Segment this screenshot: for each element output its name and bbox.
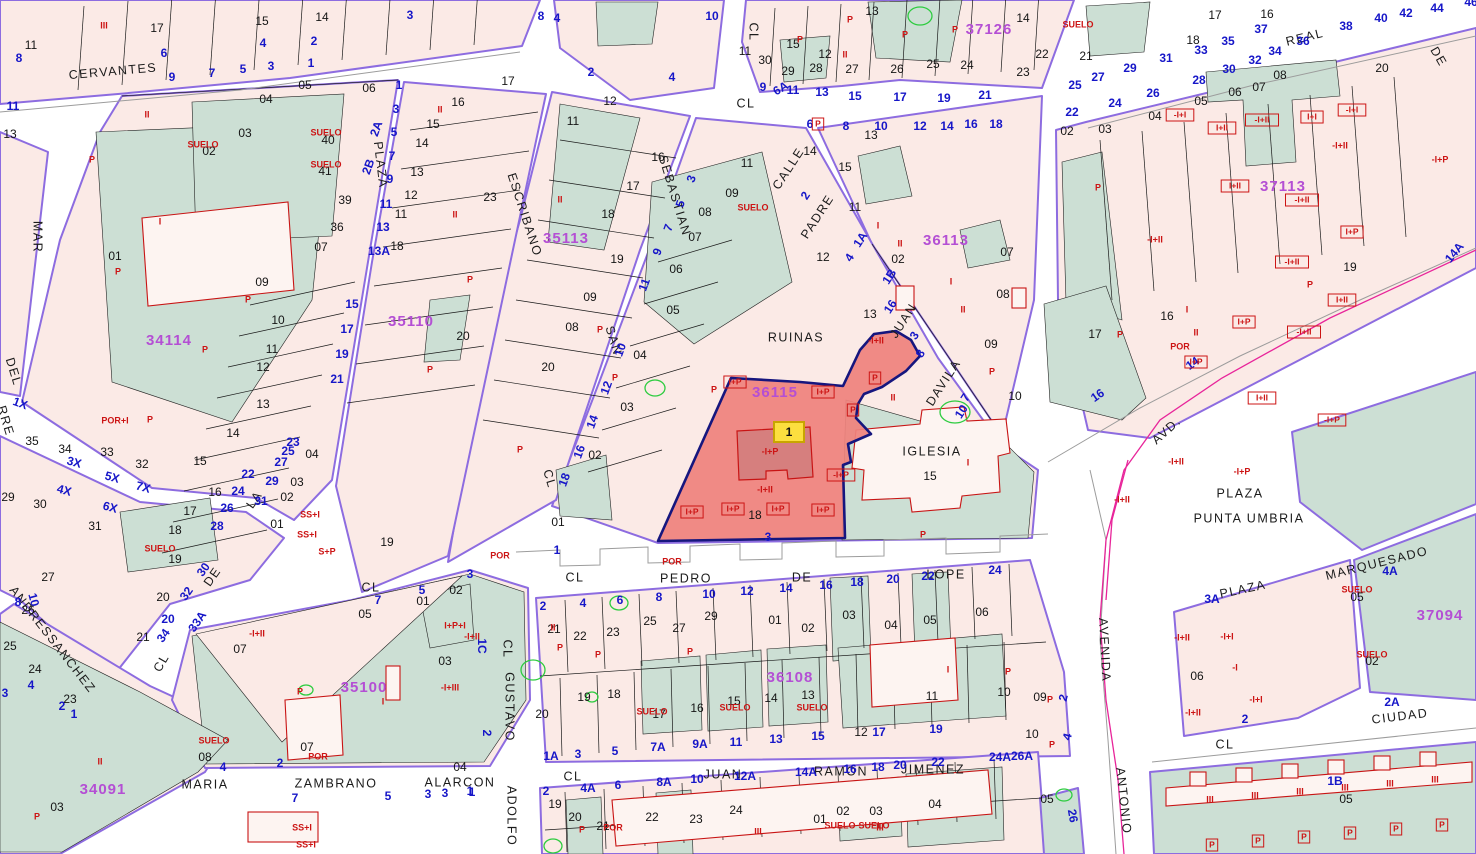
building-annotation: P: [989, 366, 995, 376]
boxed-annotation: I+II: [1336, 294, 1348, 304]
parcel-number: 21: [136, 630, 150, 644]
parcel-number: 17: [626, 179, 640, 193]
street-label: RRE: [0, 404, 17, 438]
parcel-number: 30: [758, 53, 772, 67]
building-annotation: SS+I: [300, 509, 320, 519]
house-number: 8A: [656, 775, 672, 789]
building-annotation: P: [467, 274, 473, 284]
city-block[interactable]: [1174, 560, 1360, 736]
parcel-number: 16: [451, 95, 465, 109]
house-number: 3: [407, 8, 414, 22]
parcel-number: 23: [606, 625, 620, 639]
house-number: 26: [1146, 86, 1160, 100]
house-number: 15: [811, 729, 825, 743]
parcel-number: 02: [588, 448, 602, 462]
parcel-number: 07: [233, 642, 247, 656]
street-label: ALARCON: [425, 775, 496, 789]
parcel-number: 04: [305, 447, 319, 461]
parcel-number: 14: [415, 136, 429, 150]
street-label: DE: [792, 570, 812, 584]
boxed-annotation: I+II: [1216, 122, 1228, 132]
building-annotation: SS+I: [296, 839, 316, 849]
house-number: 37: [1254, 22, 1268, 36]
house-number: 4: [220, 760, 227, 774]
house-number: 20: [161, 612, 175, 626]
building-footprint: [1012, 288, 1026, 308]
house-number: 17: [893, 90, 907, 104]
parcel-number: 09: [1033, 690, 1047, 704]
building-annotation: POR: [308, 751, 328, 761]
parcel-number: 20: [1375, 61, 1389, 75]
green-parcel[interactable]: [1086, 2, 1150, 56]
house-number: 29: [1123, 61, 1137, 75]
building-annotation: II: [842, 49, 847, 59]
house-number: 35: [1221, 34, 1235, 48]
building-annotation: SUELO: [636, 706, 667, 716]
house-number: 36: [1296, 34, 1310, 48]
parcel-number: 05: [1040, 792, 1054, 806]
parcel-number: 06: [1228, 85, 1242, 99]
parcel-number: 25: [3, 639, 17, 653]
parcel-number: 12: [404, 188, 418, 202]
building-annotation: -I+II: [1185, 707, 1201, 717]
parcel-number: 25: [926, 57, 940, 71]
house-number: 2: [311, 34, 318, 48]
parcel-number: 04: [1148, 109, 1162, 123]
building-annotation: III: [1431, 774, 1439, 784]
parcel-number: 03: [869, 804, 883, 818]
house-number: 2: [480, 730, 494, 737]
parcel-number: 15: [426, 117, 440, 131]
boxed-annotation: I+II: [1256, 392, 1268, 402]
boxed-annotation: P: [815, 118, 821, 128]
parcel-number: 01: [108, 249, 122, 263]
street-label: CIUDAD: [1371, 706, 1429, 727]
building-annotation: P: [89, 154, 95, 164]
building-annotation: -I+I: [1249, 694, 1262, 704]
building-annotation: II: [452, 209, 457, 219]
house-number: 7A: [650, 740, 666, 754]
boxed-annotation: -I+II: [1297, 326, 1312, 336]
building-annotation: P: [847, 14, 853, 24]
parcel-number: 05: [358, 607, 372, 621]
green-parcel[interactable]: [868, 0, 962, 62]
parcel-number: 15: [193, 454, 207, 468]
parcel-number: 02: [836, 804, 850, 818]
building-annotation: -I: [1232, 662, 1238, 672]
house-number: 10: [705, 9, 719, 23]
house-number: 26: [220, 501, 234, 515]
parcel-number: 15: [838, 160, 852, 174]
parcel-number: 02: [801, 621, 815, 635]
parcel-number: 17: [183, 504, 197, 518]
parcel-number: 05: [298, 78, 312, 92]
building-annotation: SS+I: [297, 529, 317, 539]
parcel-number: 01: [416, 594, 430, 608]
house-number: 22: [241, 467, 255, 481]
parcel-number: 10: [271, 313, 285, 327]
building-annotation: -I+II: [249, 628, 265, 638]
house-number: 8: [656, 590, 663, 604]
house-number: 3A: [1204, 592, 1220, 606]
green-parcel[interactable]: [596, 2, 658, 46]
cadastral-map-canvas[interactable]: CERVANTESMARDELRREPLAZAESCRIBANOSEBASTIA…: [0, 0, 1476, 854]
parcel-number: 09: [255, 275, 269, 289]
building-annotation: P: [115, 266, 121, 276]
house-number: 2: [543, 784, 550, 798]
building-annotation: SUELO: [796, 702, 827, 712]
building-footprint: [870, 638, 958, 707]
parcel-number: 02: [449, 583, 463, 597]
building-annotation: -I+P: [1234, 466, 1251, 476]
house-number: 3: [442, 786, 449, 800]
house-number: 17: [340, 322, 354, 336]
building-annotation: POR: [490, 550, 510, 560]
house-number: 24A: [989, 750, 1011, 764]
parcel-number: 05: [923, 613, 937, 627]
parcel-number: 11: [266, 342, 279, 356]
house-number: 4: [669, 70, 676, 84]
house-number: 26: [1065, 808, 1081, 824]
house-number: 5X: [103, 469, 121, 486]
selected-parcel-badge: 1: [773, 421, 805, 443]
boxed-annotation: P: [850, 404, 856, 414]
house-number: 14A: [795, 765, 817, 779]
parcel-number: 22: [573, 629, 587, 643]
parcel-number: 20: [535, 707, 549, 721]
block-code: 35113: [543, 230, 589, 247]
parcel-number: 11: [567, 114, 580, 128]
house-number: 1A: [543, 749, 559, 763]
building-annotation: POR: [1170, 341, 1190, 351]
building-annotation: -I+I: [1220, 631, 1233, 641]
building-annotation: P: [595, 649, 601, 659]
boundary-line: [1106, 460, 1128, 600]
house-number: 11: [730, 735, 743, 749]
building-annotation: P: [920, 529, 926, 539]
parcel-number: 29: [781, 64, 795, 78]
house-number: 9A: [692, 737, 708, 751]
block-code: 36108: [767, 669, 814, 686]
house-number: 27: [274, 455, 288, 469]
house-number: 4: [28, 678, 35, 692]
parcel-number: 19: [548, 797, 562, 811]
parcel-number: 29: [704, 609, 718, 623]
building-annotation: SUELO: [1062, 19, 1093, 29]
parcel-number: 13: [863, 307, 877, 321]
parcel-number: 14: [1016, 11, 1030, 25]
building-footprint: [1282, 764, 1298, 778]
block-code: 36113: [923, 232, 969, 249]
house-number: 2A: [1384, 695, 1400, 709]
parcel-number: 13: [865, 4, 879, 18]
parcel-number: 33: [100, 445, 114, 459]
street-label: RUINAS: [768, 330, 824, 344]
house-number: 25: [1068, 78, 1082, 92]
building-annotation: POR: [603, 822, 623, 832]
parcel-number: 16: [208, 485, 222, 499]
building-annotation: II: [97, 756, 102, 766]
boxed-annotation: -I+I: [1174, 109, 1187, 119]
house-number: 19: [937, 91, 951, 105]
house-number: 6: [617, 593, 624, 607]
house-number: 34: [154, 626, 173, 645]
building-annotation: III: [754, 826, 762, 836]
building-annotation: P: [711, 384, 717, 394]
building-annotation: I: [382, 696, 385, 706]
building-annotation: P: [245, 294, 251, 304]
street-label: PLAZA: [1216, 486, 1263, 500]
building-annotation: P: [1117, 329, 1123, 339]
parcel-number: 08: [698, 205, 712, 219]
building-annotation: I+P+I: [444, 620, 466, 630]
house-number: 1: [71, 707, 78, 721]
boxed-annotation: I+P: [1190, 356, 1203, 366]
building-annotation: I: [877, 220, 880, 230]
house-number: 28: [210, 519, 224, 533]
parcel-number: 04: [928, 797, 942, 811]
house-number: 8: [843, 119, 850, 133]
building-annotation: II: [550, 622, 555, 632]
house-number: 11: [7, 99, 20, 113]
house-number: 1: [554, 543, 561, 557]
house-number: 14: [940, 119, 954, 133]
boxed-annotation: I+II: [1229, 180, 1241, 190]
parcel-number: 23: [1016, 65, 1030, 79]
building-annotation: SUELO: [858, 820, 889, 830]
boxed-annotation: I+I: [1307, 111, 1317, 121]
parcel-number: 08: [565, 320, 579, 334]
parcel-number: 20: [541, 360, 555, 374]
boxed-annotation: -I+P: [1324, 414, 1340, 424]
building-annotation: SS+I: [292, 822, 312, 832]
house-number: 13A: [368, 244, 390, 258]
house-number: 29: [265, 474, 279, 488]
boxed-annotation: P: [1255, 835, 1261, 845]
building-footprint: [1374, 756, 1390, 770]
house-number: 7X: [134, 479, 152, 496]
parcel-number: 30: [33, 497, 47, 511]
building-annotation: SUELO: [1341, 584, 1372, 594]
building-footprint: [1420, 752, 1436, 766]
block-code: 35110: [388, 313, 434, 330]
parcel-number: 01: [270, 517, 284, 531]
parcel-number: 25: [643, 614, 657, 628]
boxed-annotation: I+P: [817, 386, 830, 396]
parcel-number: 07: [314, 240, 328, 254]
parcel-number: 03: [842, 608, 856, 622]
parcel-number: 07: [1252, 80, 1266, 94]
parcel-number: 17: [501, 74, 515, 88]
house-number: 34: [1268, 44, 1282, 58]
house-number: 15: [848, 89, 862, 103]
house-number: 16: [843, 762, 857, 776]
house-number: 18: [871, 760, 885, 774]
building-annotation: P: [517, 444, 523, 454]
parcel-number: 02: [891, 252, 905, 266]
parcel-number: 24: [28, 662, 42, 676]
house-number: 10: [690, 772, 704, 786]
building-annotation: P: [427, 364, 433, 374]
parcel-number: 29: [1, 490, 15, 504]
block-code: 37113: [1260, 178, 1306, 195]
house-number: 46: [1464, 0, 1476, 9]
house-number: 2: [588, 65, 595, 79]
house-number: 22: [1065, 105, 1079, 119]
parcel-number: 09: [583, 290, 597, 304]
house-number: 2: [277, 756, 284, 770]
house-number: 30: [1222, 62, 1236, 76]
house-number: 14: [779, 581, 793, 595]
parcel-number: 26: [21, 603, 35, 617]
parcel-number: 04: [453, 760, 467, 774]
house-number: 27: [1091, 70, 1105, 84]
parcel-number: 14: [315, 10, 329, 24]
parcel-number: 27: [672, 621, 686, 635]
parcel-number: 09: [984, 337, 998, 351]
parcel-number: 12: [854, 725, 868, 739]
parcel-number: 02: [280, 490, 294, 504]
parcel-number: 28: [809, 61, 823, 75]
boxed-annotation: I+P: [1346, 226, 1359, 236]
house-number: 17: [872, 725, 886, 739]
boxed-annotation: P: [1439, 819, 1445, 829]
building-annotation: -I+P: [1432, 154, 1449, 164]
house-number: 6: [161, 46, 168, 60]
boxed-annotation: P: [1393, 823, 1399, 833]
parcel-number: 03: [290, 475, 304, 489]
building-footprint: [1190, 772, 1206, 786]
building-footprint: [285, 695, 343, 760]
house-number: 3: [575, 747, 582, 761]
parcel-number: 19: [610, 252, 624, 266]
house-number: 4A: [1382, 564, 1398, 578]
parcel-number: 13: [256, 397, 270, 411]
parcel-number: 11: [739, 44, 752, 58]
boxed-annotation: -I+II: [1285, 256, 1300, 266]
parcel-number: 27: [845, 62, 859, 76]
cadastral-map: CERVANTESMARDELRREPLAZAESCRIBANOSEBASTIA…: [0, 0, 1476, 854]
house-number: 9: [760, 80, 767, 94]
parcel-number: 20: [456, 329, 470, 343]
house-number: 40: [1374, 11, 1388, 25]
parcel-number: 07: [688, 230, 702, 244]
house-number: 18: [850, 575, 864, 589]
house-number: 13: [815, 85, 829, 99]
parcel-number: 05: [666, 303, 680, 317]
boxed-annotation: P: [872, 372, 878, 382]
house-number: 13: [769, 732, 783, 746]
parcel-number: 04: [633, 348, 647, 362]
building-annotation: -I+II: [1168, 456, 1184, 466]
boxed-annotation: P: [1347, 827, 1353, 837]
building-annotation: P: [297, 686, 303, 696]
boxed-annotation: I+P: [1238, 316, 1251, 326]
building-annotation: II: [557, 194, 562, 204]
parcel-number: 32: [135, 457, 149, 471]
house-number: 11: [787, 83, 800, 97]
house-number: 2: [540, 599, 547, 613]
building-annotation: -I+III: [441, 682, 459, 692]
building-annotation: -I+II: [464, 631, 480, 641]
house-number: 16: [964, 117, 978, 131]
building-annotation: P: [687, 646, 693, 656]
building-annotation: III: [1341, 782, 1349, 792]
parcel-number: 08: [198, 750, 212, 764]
parcel-number: 06: [669, 262, 683, 276]
parcel-number: 31: [88, 519, 102, 533]
city-block[interactable]: [1292, 372, 1476, 550]
building-annotation: -I+II: [1332, 140, 1348, 150]
house-number: 5: [385, 789, 392, 803]
street-label: PEDRO: [660, 571, 712, 585]
house-number: 4A: [580, 781, 596, 795]
parcel-number: 06: [362, 81, 376, 95]
parcel-number: 11: [741, 156, 754, 170]
parcel-number: 03: [238, 126, 252, 140]
block-code: 37094: [1417, 607, 1464, 624]
house-number: 42: [1399, 6, 1413, 20]
street-label: IGLESIA: [902, 444, 961, 458]
building-annotation: III: [100, 20, 108, 30]
parcel-number: 14: [764, 691, 778, 705]
house-number: 12A: [734, 769, 756, 783]
house-number: 20: [886, 572, 900, 586]
house-number: 4: [554, 11, 561, 25]
parcel-number: 04: [259, 92, 273, 106]
building-annotation: III: [1251, 790, 1259, 800]
street-label: CL: [151, 651, 173, 674]
building-footprint: [386, 666, 400, 700]
parcel-number: 16: [1160, 309, 1174, 323]
block-code: 37126: [966, 21, 1013, 38]
parcel-number: 10: [1008, 389, 1022, 403]
building-annotation: III: [1206, 794, 1214, 804]
building-annotation: SUELO: [1356, 649, 1387, 659]
building-annotation: II: [897, 238, 902, 248]
house-number: 3: [2, 686, 9, 700]
building-annotation: SUELO: [737, 202, 768, 212]
parcel-number: 18: [1186, 33, 1200, 47]
building-annotation: P: [612, 372, 618, 382]
block-code: 35100: [341, 679, 388, 696]
parcel-number: 10: [1025, 727, 1039, 741]
building-annotation: P: [147, 414, 153, 424]
parcel-number: 05: [1339, 792, 1353, 806]
building-annotation: S+P: [318, 546, 335, 556]
house-number: 10: [702, 587, 716, 601]
street-label: CL: [1216, 737, 1235, 751]
street-label: ZAMBRANO: [295, 776, 378, 790]
building-annotation: P: [902, 29, 908, 39]
building-annotation: SUELO: [824, 820, 855, 830]
house-number: 12: [913, 119, 927, 133]
green-parcel[interactable]: [706, 650, 763, 731]
building-footprint: [1328, 760, 1344, 774]
house-number: 3: [268, 59, 275, 73]
boxed-annotation: -I+I: [1346, 104, 1359, 114]
house-number: 21: [330, 372, 344, 386]
parcel-number: 03: [620, 400, 634, 414]
parcel-number: 12: [603, 94, 617, 108]
house-number: 22: [931, 755, 945, 769]
house-number: 4: [580, 596, 587, 610]
parcel-number: 11: [926, 689, 939, 703]
building-annotation: -I+II: [1174, 632, 1190, 642]
house-number: 5: [391, 125, 398, 139]
building-annotation: SUELO: [187, 139, 218, 149]
parcel-number: 13: [410, 165, 424, 179]
